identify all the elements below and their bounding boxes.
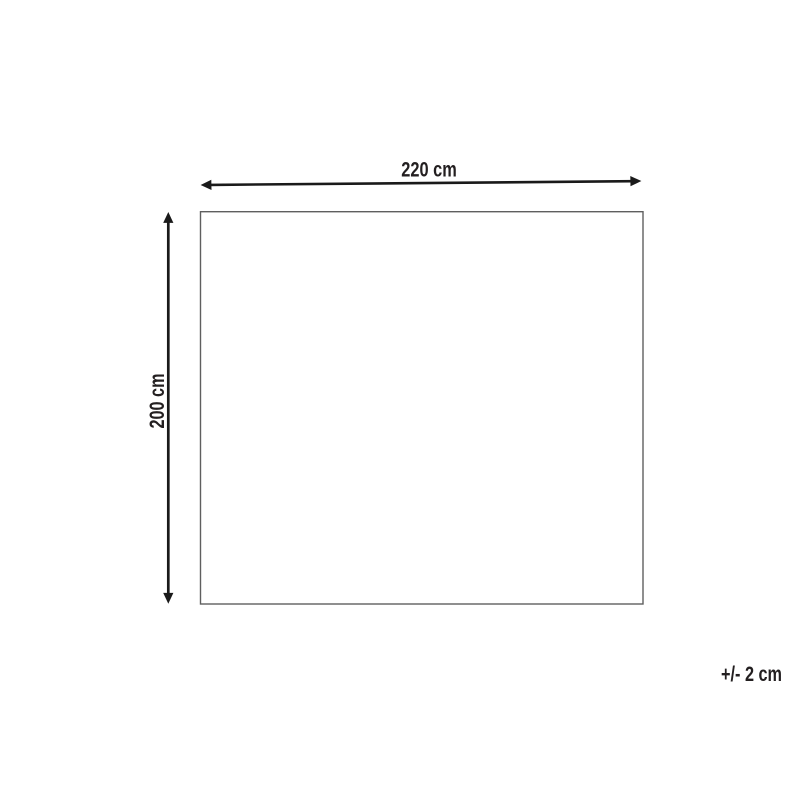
svg-text:220 cm: 220 cm <box>401 159 457 182</box>
svg-text:+/- 2 cm: +/- 2 cm <box>721 663 782 686</box>
svg-text:200 cm: 200 cm <box>146 374 169 429</box>
